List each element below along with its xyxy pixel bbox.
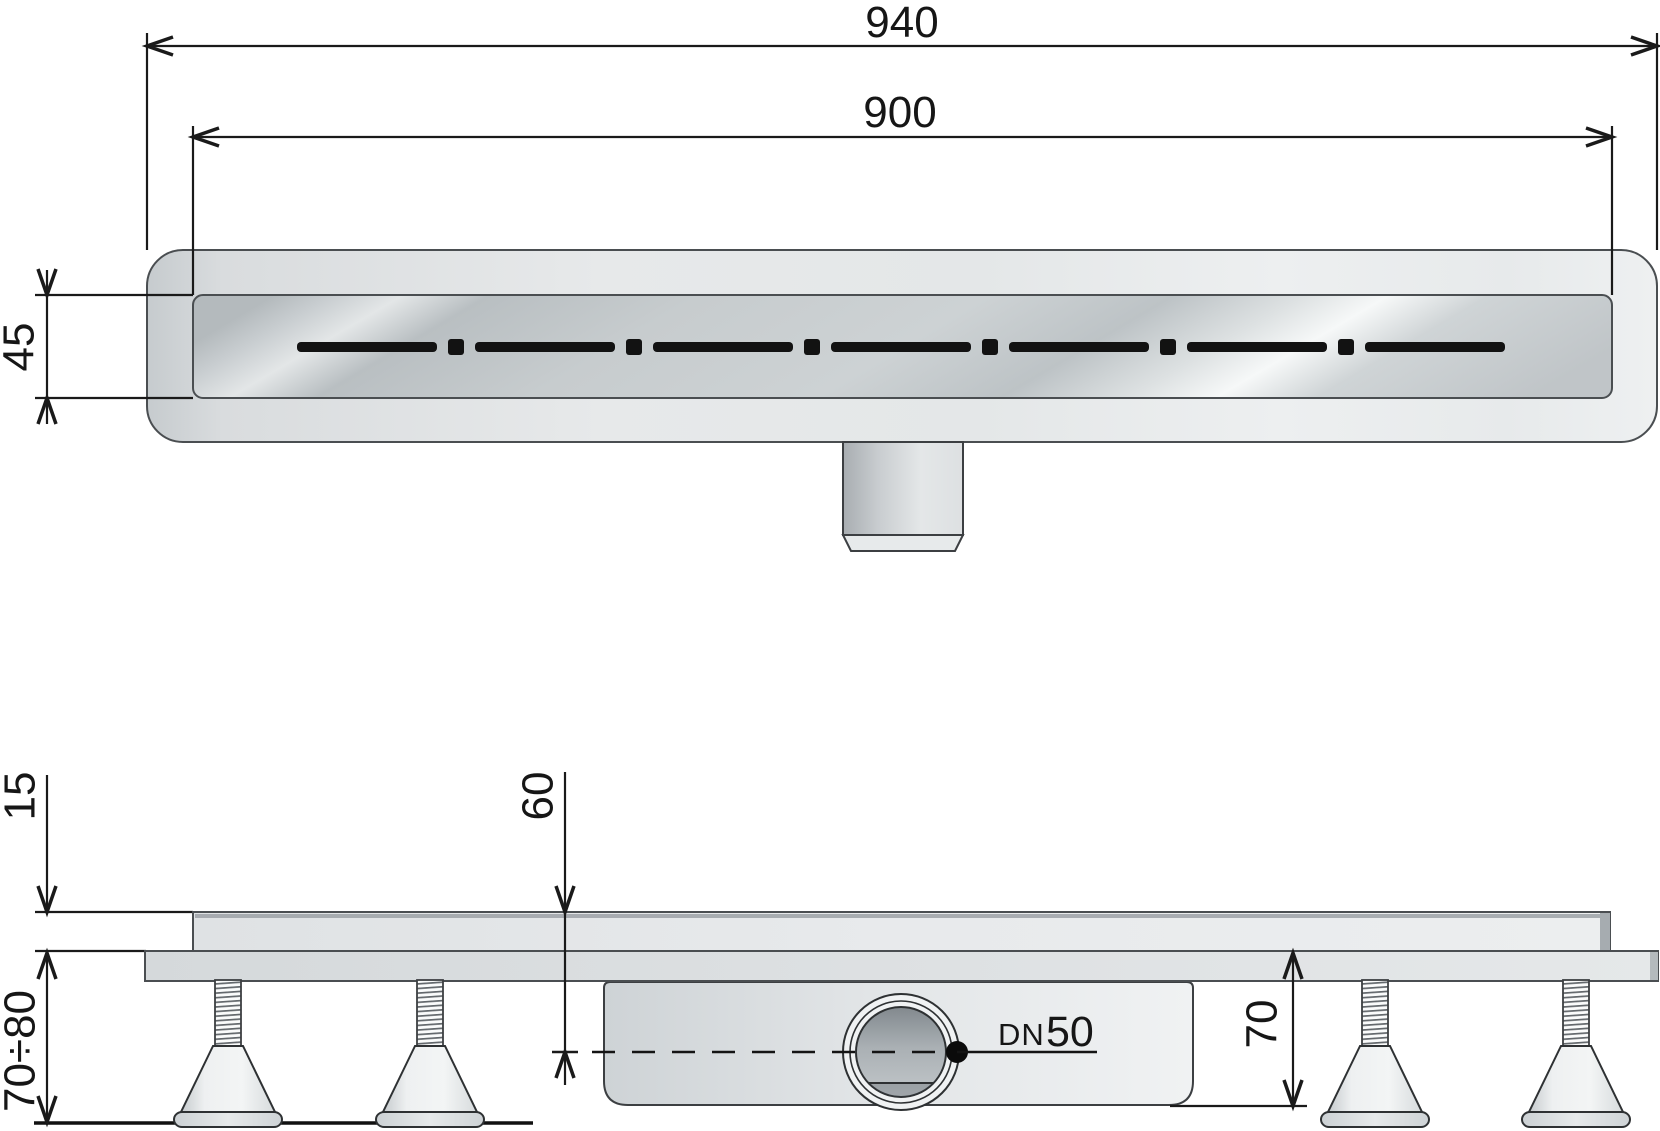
drawing-canvas: 940 900 45 (0, 0, 1660, 1131)
tile-right-edge (1600, 913, 1610, 950)
grate-slot-square (1338, 339, 1354, 355)
grate-slot (1009, 342, 1149, 352)
foot-cone (181, 1046, 275, 1112)
outlet-dn-size-label: 50 (1046, 1008, 1094, 1056)
grate-slot (475, 342, 615, 352)
side-view: DN 50 15 70÷80 60 70 (0, 772, 1658, 1127)
foot-threaded-rod (1362, 980, 1388, 1046)
dim-label-body-height: 70 (1238, 1000, 1287, 1049)
dim-label-tile-thickness: 15 (0, 772, 45, 821)
foot-cone (1529, 1046, 1623, 1112)
outlet-pipe-chamfer (843, 535, 963, 551)
adjustable-foot (174, 980, 282, 1127)
foot-cone (1328, 1046, 1422, 1112)
outlet-pipe-section (843, 994, 959, 1110)
grate-slot (653, 342, 793, 352)
technical-drawing-shower-drain: 940 900 45 (0, 0, 1660, 1131)
foot-threaded-rod (1563, 980, 1589, 1046)
grate-slot-square (982, 339, 998, 355)
tile-top-edge (195, 914, 1608, 918)
grate-slot-square (804, 339, 820, 355)
foot-base (1321, 1112, 1429, 1127)
top-view: 940 900 45 (0, 0, 1657, 551)
foot-threaded-rod (215, 980, 241, 1046)
grate-slot (1365, 342, 1505, 352)
dim-label-height-range: 70÷80 (0, 990, 45, 1112)
adjustable-foot (376, 980, 484, 1127)
grate-slot-square (626, 339, 642, 355)
dim-label-overall-length: 940 (865, 0, 938, 47)
dim-label-depth-to-axis: 60 (514, 772, 563, 821)
dim-label-width: 45 (0, 323, 44, 372)
foot-cone (383, 1046, 477, 1112)
grate-slot (1187, 342, 1327, 352)
foot-base (376, 1112, 484, 1127)
outlet-pipe-top-view (843, 442, 963, 535)
adjustable-foot (1321, 980, 1429, 1127)
grate-slot-square (448, 339, 464, 355)
dim-label-inner-length: 900 (863, 88, 936, 137)
foot-threaded-rod (417, 980, 443, 1046)
foot-base (1522, 1112, 1630, 1127)
dimension-940 (147, 33, 1657, 250)
adjustable-foot (1522, 980, 1630, 1127)
grate-slot (297, 342, 437, 352)
foot-base (174, 1112, 282, 1127)
grate-slot-square (1160, 339, 1176, 355)
flange-right-edge (1650, 952, 1658, 980)
grate-slot (831, 342, 971, 352)
outlet-dn-prefix-label: DN (998, 1017, 1045, 1052)
channel-flange (145, 951, 1658, 981)
